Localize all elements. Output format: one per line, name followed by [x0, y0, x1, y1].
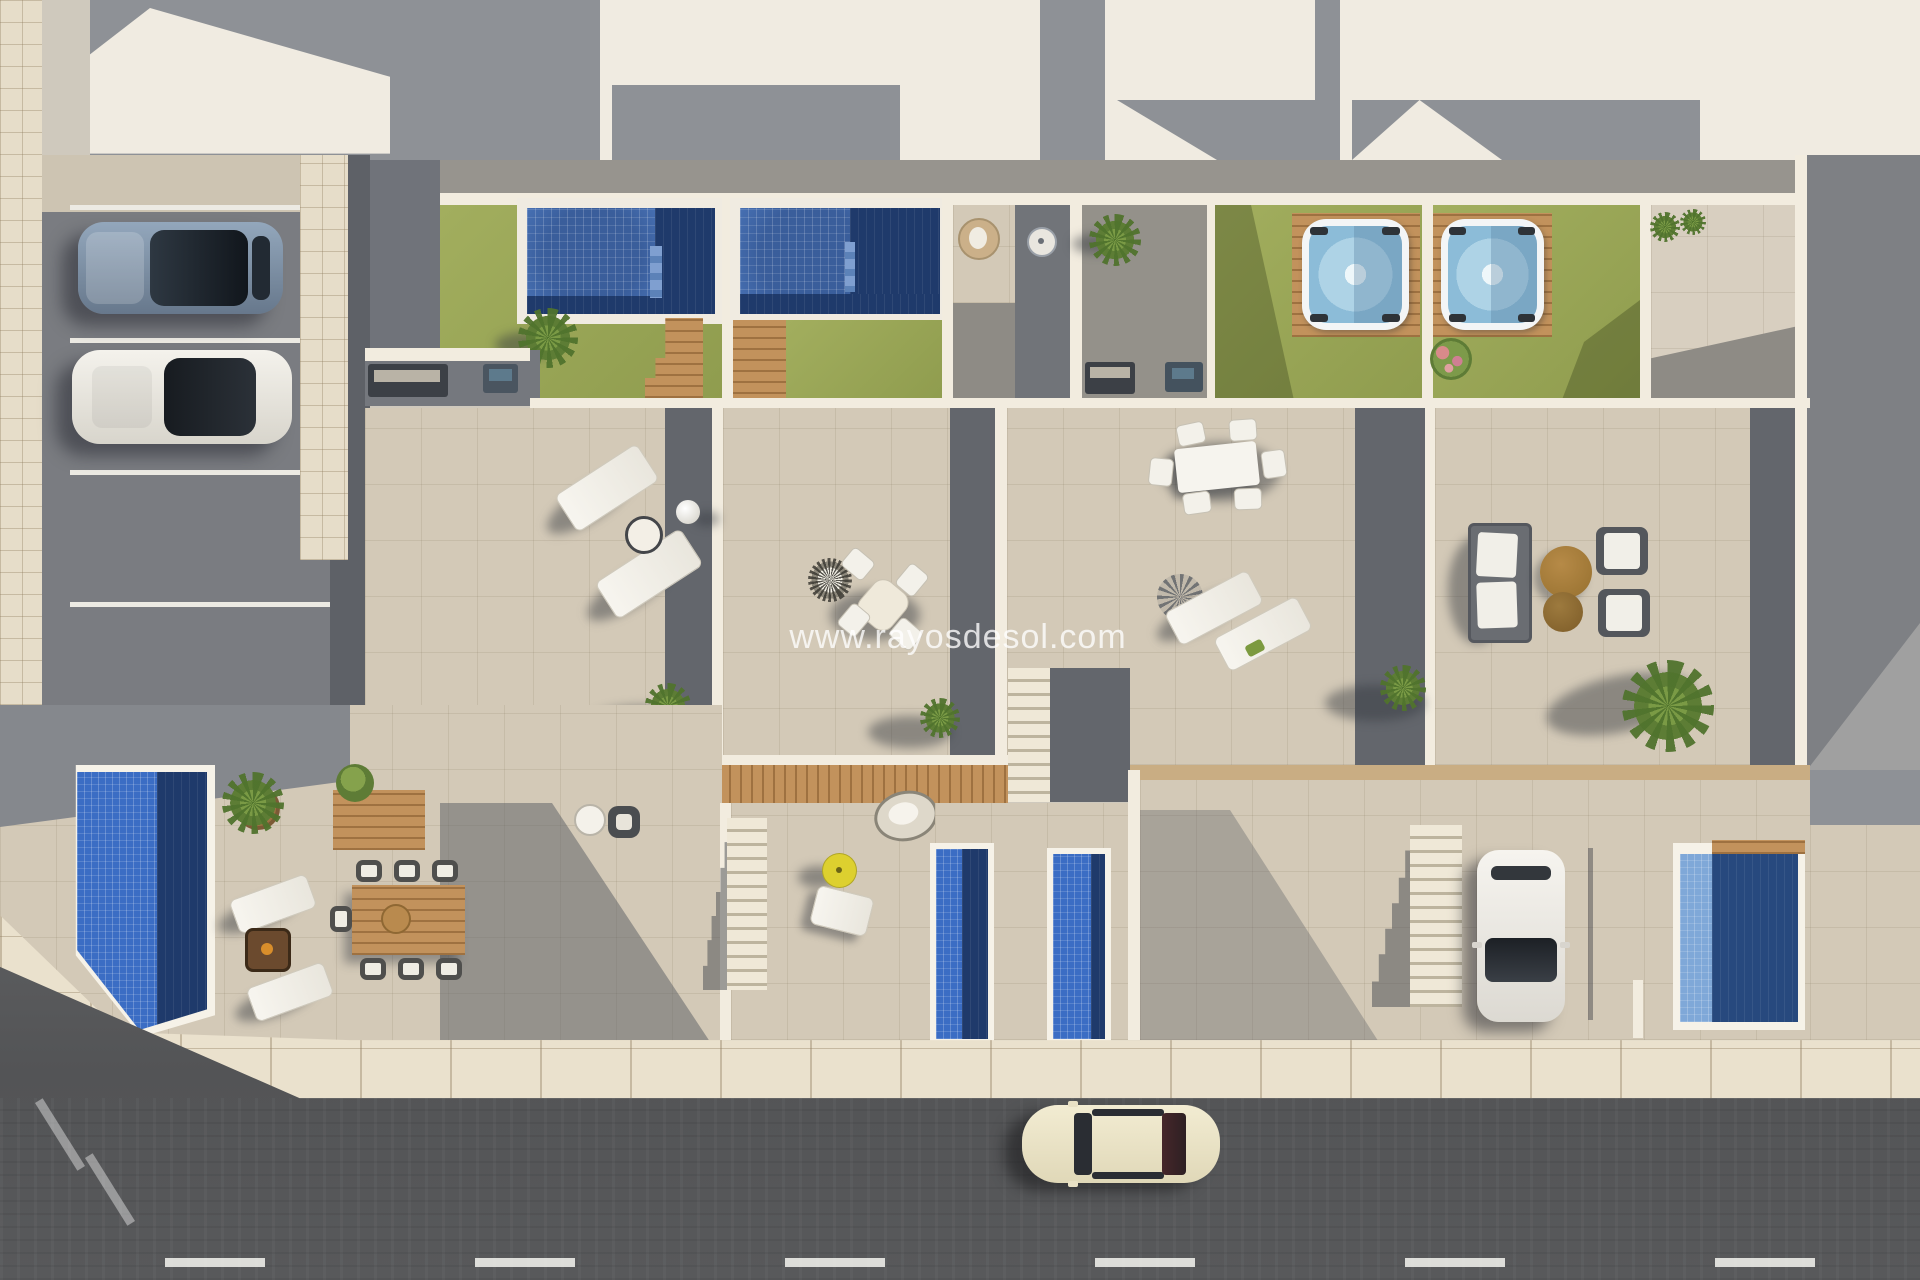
bbq-top	[374, 370, 440, 382]
garden-wall	[1207, 193, 1215, 405]
palm-tree	[1380, 665, 1426, 711]
hot-tub-1	[1302, 219, 1409, 330]
car-rear-window	[252, 236, 270, 300]
dining-chair	[1234, 488, 1263, 511]
car-side-window	[1092, 1109, 1164, 1116]
chair-cushion	[361, 865, 377, 877]
lawn-unit2	[786, 320, 942, 405]
armchair	[1596, 527, 1648, 575]
hot-tub-2	[1441, 219, 1544, 330]
patio-palm	[1650, 212, 1680, 242]
parking-line	[70, 205, 330, 210]
lane-marking	[1095, 1258, 1195, 1267]
lane-marking	[1715, 1258, 1815, 1267]
staircase	[727, 818, 767, 990]
aerial-development-render: www.rayosdesol.com	[0, 0, 1920, 1280]
sofa-cushion	[1476, 581, 1518, 628]
table-disc	[381, 904, 411, 934]
pool-deep	[1712, 854, 1798, 1022]
shrub	[336, 764, 374, 802]
coffee-table-round	[1540, 546, 1592, 598]
pool-shallow	[1680, 854, 1712, 1022]
car-windshield	[1485, 938, 1557, 982]
wicker-dining-chair	[436, 958, 462, 980]
street-texture	[0, 1098, 1920, 1280]
side-table	[625, 516, 663, 554]
dining-chair	[1148, 457, 1175, 487]
garden-wall	[942, 193, 953, 405]
garden-wall	[1070, 193, 1082, 405]
chair-cushion	[616, 814, 632, 830]
outdoor-shower	[1027, 227, 1057, 257]
wicker-dining-chair	[330, 906, 352, 932]
tub-headrest	[1518, 227, 1535, 235]
pool-lower-right	[1680, 854, 1798, 1022]
plant-leaves	[222, 772, 284, 834]
parking-line	[70, 338, 330, 343]
car-mirror	[1472, 942, 1482, 948]
tub-headrest	[1449, 314, 1466, 322]
lane-marking	[1405, 1258, 1505, 1267]
bbq-counter	[1085, 362, 1135, 394]
parasol-pole	[836, 867, 842, 873]
dark-path-patch	[330, 560, 370, 705]
car-mirror	[1068, 1101, 1078, 1107]
wicker-chair	[958, 218, 1000, 260]
garden-wall	[1422, 193, 1433, 405]
chair-cushion	[399, 865, 415, 877]
tub-headrest	[1310, 227, 1328, 235]
tub-headrest	[1382, 314, 1400, 322]
tub-shade	[1354, 226, 1402, 323]
car-rear-window	[1491, 866, 1551, 880]
tub-headrest	[1382, 227, 1400, 235]
parking-line	[70, 470, 330, 475]
chair-towel	[969, 227, 987, 249]
parking-line	[70, 602, 330, 607]
flower-bush	[1430, 338, 1472, 380]
wicker-dining-chair	[356, 860, 382, 882]
chair-cushion	[437, 865, 453, 877]
car-glass-roof	[164, 358, 256, 436]
parasol-yellow	[822, 853, 857, 888]
bbq-sink	[483, 364, 518, 393]
lane-marking	[475, 1258, 575, 1267]
egg-chair-cushion	[886, 800, 920, 828]
fire-ember	[261, 943, 273, 955]
round-table-white	[574, 804, 606, 836]
dining-table	[1174, 441, 1260, 493]
car-hood-highlight	[86, 232, 144, 304]
car-glass-roof	[150, 230, 248, 306]
palm-tree-large	[1622, 660, 1714, 752]
terrace-shade-strip	[1750, 408, 1795, 765]
staircase	[1410, 825, 1462, 1007]
terrace-wall	[995, 405, 1007, 765]
dining-chair	[1182, 490, 1213, 516]
wicker-dining-chair	[398, 958, 424, 980]
car-sedan-white	[72, 350, 292, 444]
kitchen-wall	[365, 348, 530, 361]
car-mirror	[1068, 1181, 1078, 1187]
armchair	[1598, 589, 1650, 637]
patio-palm	[1680, 209, 1706, 235]
tiled-strip-left	[0, 0, 42, 705]
car-driving-cream	[1022, 1105, 1220, 1183]
car-mirror	[1560, 942, 1570, 948]
dining-chair	[1228, 418, 1257, 442]
pool-c-deck-band	[1712, 840, 1805, 854]
fire-bowl	[245, 928, 291, 972]
palm-tree	[920, 698, 960, 738]
chair-cushion	[403, 963, 419, 975]
chair-cushion	[365, 963, 381, 975]
bbq-top	[1090, 367, 1130, 378]
wall-stub	[1633, 980, 1643, 1038]
car-sedan-blue	[78, 222, 283, 314]
car-rear-window	[1162, 1113, 1186, 1175]
tub-shade	[1491, 226, 1537, 323]
sink-basin	[489, 369, 512, 381]
car-hood-line	[92, 366, 152, 428]
car-side-window	[1092, 1172, 1164, 1179]
pool-steps	[650, 246, 662, 298]
staircase	[1008, 668, 1050, 802]
hanging-chair	[608, 806, 640, 838]
pool-unit2-deep-edge	[740, 294, 940, 314]
chair-cushion	[335, 911, 347, 927]
car-windshield	[1074, 1113, 1092, 1175]
terrace-wall	[1425, 405, 1435, 765]
outdoor-sofa	[1468, 523, 1532, 643]
armchair-cushion	[1606, 595, 1642, 631]
plunge-pool-b-deep	[1091, 854, 1105, 1039]
lane-marking	[165, 1258, 265, 1267]
lane-marking	[785, 1258, 885, 1267]
watermark-text: www.rayosdesol.com	[558, 618, 1358, 657]
armchair-cushion	[1604, 533, 1640, 569]
plunge-pool-a-deep	[962, 849, 988, 1039]
car-parked-white	[1477, 850, 1565, 1022]
tub-headrest	[1449, 227, 1466, 235]
ball-lamp	[676, 500, 700, 524]
wood-deck-band	[733, 320, 786, 405]
pool-steps	[845, 242, 855, 292]
boundary-wall	[1795, 155, 1807, 770]
wicker-dining-chair	[394, 860, 420, 882]
roof-terrace-shadow	[612, 85, 900, 160]
unit-wall	[1128, 770, 1140, 1040]
coffee-table-round	[1543, 592, 1583, 632]
sink-basin	[1172, 368, 1194, 379]
bbq-counter	[368, 364, 448, 397]
wicker-dining-chair	[360, 958, 386, 980]
patio-unit2-shade	[953, 303, 1015, 405]
parking-pavement	[42, 155, 330, 212]
tub-headrest	[1518, 314, 1535, 322]
tub-headrest	[1310, 314, 1328, 322]
dining-chair	[1260, 448, 1288, 479]
pole-shadow	[1588, 848, 1593, 1020]
neighbor-shade	[1810, 770, 1920, 825]
sofa-cushion	[1476, 532, 1518, 578]
chair-cushion	[441, 963, 457, 975]
shower-drain	[1038, 238, 1044, 244]
bbq-sink	[1165, 362, 1203, 392]
patio-palm	[1089, 214, 1141, 266]
wicker-dining-chair	[432, 860, 458, 882]
pool-deep	[157, 772, 207, 1030]
stair-shade	[1050, 668, 1130, 802]
tiled-walkway	[300, 155, 348, 560]
